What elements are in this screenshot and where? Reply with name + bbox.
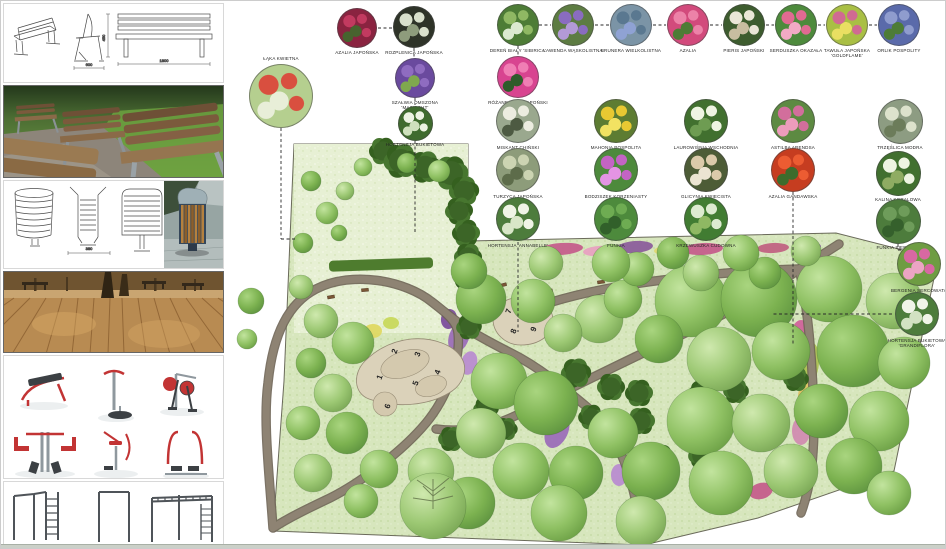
deciduous-tree bbox=[667, 387, 735, 455]
deciduous-tree bbox=[332, 322, 374, 364]
deciduous-tree bbox=[635, 315, 683, 363]
deciduous-tree bbox=[336, 182, 354, 200]
deciduous-tree bbox=[689, 451, 753, 515]
deciduous-tree bbox=[286, 406, 320, 440]
deciduous-tree bbox=[866, 273, 922, 329]
deciduous-tree bbox=[354, 158, 372, 176]
deciduous-tree bbox=[878, 337, 930, 389]
deciduous-tree bbox=[732, 394, 790, 452]
deciduous-tree bbox=[238, 288, 264, 314]
deciduous-tree bbox=[752, 322, 810, 380]
deciduous-tree bbox=[304, 304, 338, 338]
deciduous-tree bbox=[657, 237, 689, 269]
deciduous-tree bbox=[301, 171, 321, 191]
deciduous-tree bbox=[529, 246, 563, 280]
deciduous-tree bbox=[588, 408, 638, 458]
main-plan: 123456789 bbox=[1, 1, 946, 549]
deciduous-tree bbox=[867, 471, 911, 515]
deciduous-tree bbox=[296, 348, 326, 378]
deciduous-tree bbox=[764, 444, 818, 498]
conifer-cluster bbox=[597, 374, 625, 400]
deciduous-tree bbox=[687, 327, 751, 391]
deciduous-tree bbox=[294, 454, 332, 492]
deciduous-tree bbox=[289, 275, 313, 299]
deciduous-tree bbox=[791, 236, 821, 266]
deciduous-tree bbox=[544, 314, 582, 352]
bottom-border-bar bbox=[1, 544, 946, 549]
deciduous-tree bbox=[428, 160, 450, 182]
deciduous-tree bbox=[817, 315, 889, 387]
deciduous-tree bbox=[344, 484, 378, 518]
deciduous-tree bbox=[592, 244, 630, 282]
deciduous-tree bbox=[794, 384, 848, 438]
deciduous-tree bbox=[493, 443, 549, 499]
flower-bed bbox=[383, 317, 399, 329]
deciduous-tree bbox=[397, 153, 417, 173]
deciduous-tree bbox=[331, 225, 347, 241]
deciduous-tree bbox=[316, 202, 338, 224]
deciduous-tree bbox=[723, 235, 759, 271]
deciduous-tree bbox=[237, 329, 257, 349]
deciduous-tree bbox=[456, 408, 506, 458]
deciduous-tree bbox=[293, 233, 313, 253]
deciduous-tree bbox=[514, 371, 578, 435]
bench-symbol bbox=[361, 288, 368, 292]
deciduous-tree bbox=[326, 412, 368, 454]
deciduous-tree bbox=[683, 255, 719, 291]
design-board: 600 450 1800 bbox=[0, 0, 946, 549]
deciduous-tree bbox=[314, 374, 352, 412]
deciduous-tree bbox=[451, 253, 487, 289]
deciduous-tree bbox=[616, 496, 666, 546]
deciduous-tree bbox=[531, 485, 587, 541]
deciduous-tree bbox=[360, 450, 398, 488]
